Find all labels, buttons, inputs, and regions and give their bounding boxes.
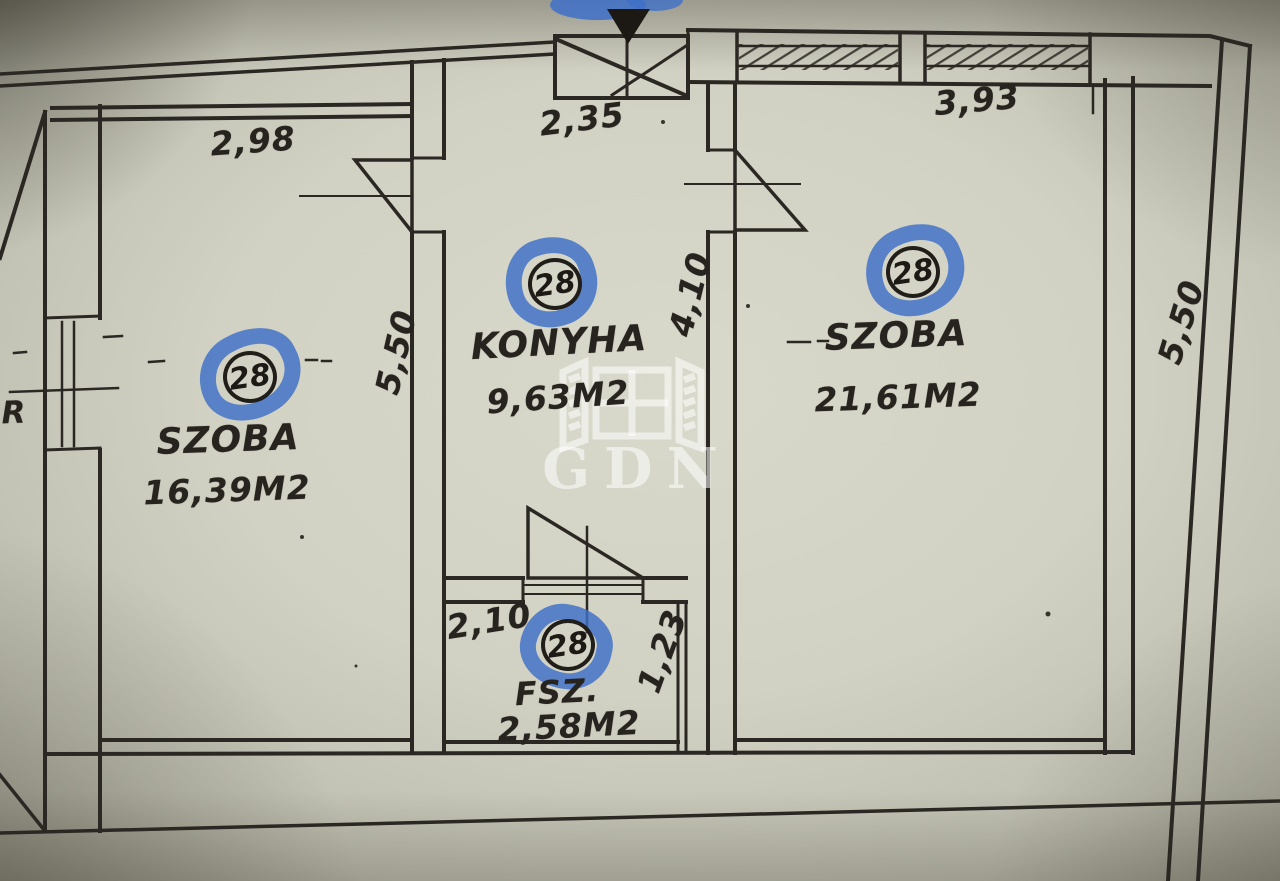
room-area-left: 16,39M2 <box>143 468 311 513</box>
kitchen-bottom-wall <box>444 578 686 602</box>
top-wall-left <box>0 42 555 86</box>
dim-right-room-width: 3,93 <box>933 77 1021 123</box>
left-outer-wall <box>0 106 118 831</box>
dim-left-room-width: 2,98 <box>209 119 297 164</box>
room-label-left: SZOBA <box>156 417 300 463</box>
left-room-door <box>300 160 412 232</box>
room-label-right: SZOBA <box>824 313 968 359</box>
unit-number-circle: 28 <box>886 246 940 298</box>
entrance-door-x <box>555 36 688 98</box>
floorplan-photo: GDN 28 28 28 28 2,98 5,50 SZOBA 16,39M2 … <box>0 0 1280 881</box>
margin-label-r: R <box>1 395 27 432</box>
outer-right-wall <box>1168 40 1250 881</box>
unit-number-circle: 28 <box>528 258 582 310</box>
unit-number-circle: 28 <box>223 351 277 403</box>
dimension-dashes <box>14 336 828 362</box>
room-area-right: 21,61M2 <box>814 375 982 420</box>
room-area-fsz: 2,58M2 <box>496 703 641 749</box>
unit-number-circle: 28 <box>541 619 595 671</box>
right-room-door <box>685 150 805 230</box>
right-room-right-wall <box>1105 78 1133 753</box>
bottom-boundary-line <box>0 801 1280 833</box>
